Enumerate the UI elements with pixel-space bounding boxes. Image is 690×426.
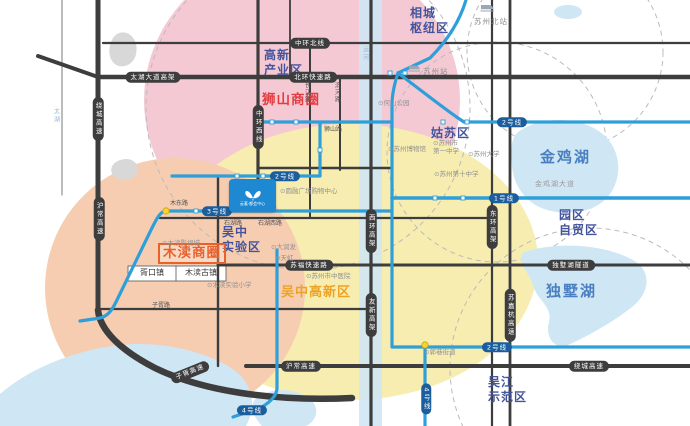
urban-blobs xyxy=(109,32,138,179)
poi-heshan-park: ⊙何山公园 xyxy=(378,99,409,107)
road-pill-xihuan-viaduct: 西环高架 xyxy=(366,209,377,253)
district-wujiang-demo: 吴江 示范区 xyxy=(488,375,527,405)
poi-mudu-primary-school: ⊙木渎实验小学 xyxy=(207,281,251,289)
district-sip-free-trade: 园区 自贸区 xyxy=(559,208,598,238)
metro-pill-line1: 1号线 xyxy=(489,193,519,203)
road-label-shishan: 狮山路 xyxy=(324,126,342,134)
lake-label-jinji: 金鸡湖 xyxy=(540,148,591,167)
poi-plaza-mall: ⊙圆融广场购物中心 xyxy=(280,187,337,195)
town-xukou: 胥口镇 xyxy=(140,268,164,278)
road-label-binhe: 滨河路 xyxy=(333,82,341,103)
train-icon xyxy=(480,3,495,12)
road-pill-raocheng-south: 绕城高速 xyxy=(569,361,609,372)
poi-guoxiang-street: ⊙郭巷街道 xyxy=(424,348,455,356)
water-label-canal: 运河 xyxy=(361,46,369,62)
metro-pill-line2-east: 2号线 xyxy=(497,117,527,127)
road-pill-donghuan-viaduct: 东环高架 xyxy=(487,205,498,249)
poi-suzhou-museum: ⊙苏州博物馆 xyxy=(388,145,426,153)
station-label-suzhou: 苏州站 xyxy=(423,67,449,76)
road-pill-beihuan-expressway: 北环快速路 xyxy=(289,72,337,83)
district-wuzhong-experimental: 吴中 实验区 xyxy=(222,225,261,255)
road-label-zixu: 子胥路 xyxy=(152,302,170,310)
district-xiangcheng-hub: 相城 枢纽区 xyxy=(410,6,449,36)
station-label-suzhou-north: 苏州北站 xyxy=(474,17,508,26)
road-label-shihu: 石湖路 xyxy=(224,220,242,228)
business-circle-wuzhong-hightech: 吴中高新区 xyxy=(281,285,351,301)
metro-pill-line4-east: 4号线 xyxy=(421,383,431,414)
road-pill-raocheng-west: 绕城高速 xyxy=(93,97,104,141)
poi-no10-middle-school: ⊙苏州第十中学 xyxy=(434,170,478,178)
road-label-shihu-west: 石湖西路 xyxy=(258,220,282,228)
water-label-taihu: 太湖 xyxy=(52,108,60,124)
road-pill-youxin-viaduct: 友新高架 xyxy=(366,293,377,337)
metro-pill-line2-south: 2号线 xyxy=(482,342,512,352)
road-pill-taihu-avenue: 太湖大道高架 xyxy=(126,72,181,83)
road-pill-zhonghuan-west: 中环西线 xyxy=(253,105,264,149)
road-pill-dushu-lake-tunnel: 独墅湖隧道 xyxy=(547,260,595,271)
map-canvas[interactable]: 苏州北站 苏州站 相城 枢纽区 高新 产业区 姑苏区 园区 自贸区 吴中 实验区… xyxy=(0,0,690,426)
poi-tianhong: ⊙天虹 xyxy=(275,254,293,262)
metro-pill-line4-west: 4号线 xyxy=(237,405,267,415)
project-logo-text: 云著·都会中心 xyxy=(240,202,265,206)
road-label-changjiang: 长江路 xyxy=(303,82,311,103)
poi-suzhou-university: ⊙苏州大学 xyxy=(468,150,499,158)
butterfly-icon xyxy=(242,186,264,201)
project-logo-marker: 云著·都会中心 xyxy=(229,179,276,212)
town-mudu-ancient: 木渎古镇 xyxy=(185,268,217,278)
road-label-jinji-lake-avenue: 金鸡湖大道 xyxy=(535,180,575,189)
road-label-mudong: 木东路 xyxy=(170,200,188,208)
poi-tcm-hospital: ⊙苏州市中医院 xyxy=(306,272,350,280)
metro-pill-line3: 3号线 xyxy=(202,206,232,216)
business-circle-shishan: 狮山商圈 xyxy=(262,92,320,109)
poi-no1-middle-school: ⊙苏州市 第一中学 xyxy=(433,139,459,156)
road-pill-huchang-west: 沪常高速 xyxy=(94,197,105,241)
road-pill-sujiahang-expressway: 苏嘉杭高速 xyxy=(505,289,516,342)
poi-rt-mart: ⊙大润发 xyxy=(271,243,296,251)
train-icon xyxy=(408,64,421,72)
lake-label-dushu: 独墅湖 xyxy=(546,282,597,301)
road-pill-zhonghuan-north: 中环北线 xyxy=(290,38,330,49)
poi-mudu-studio: ⊙木渎影视城 xyxy=(162,239,200,247)
road-pill-huchang-south: 沪常高速 xyxy=(281,361,321,372)
